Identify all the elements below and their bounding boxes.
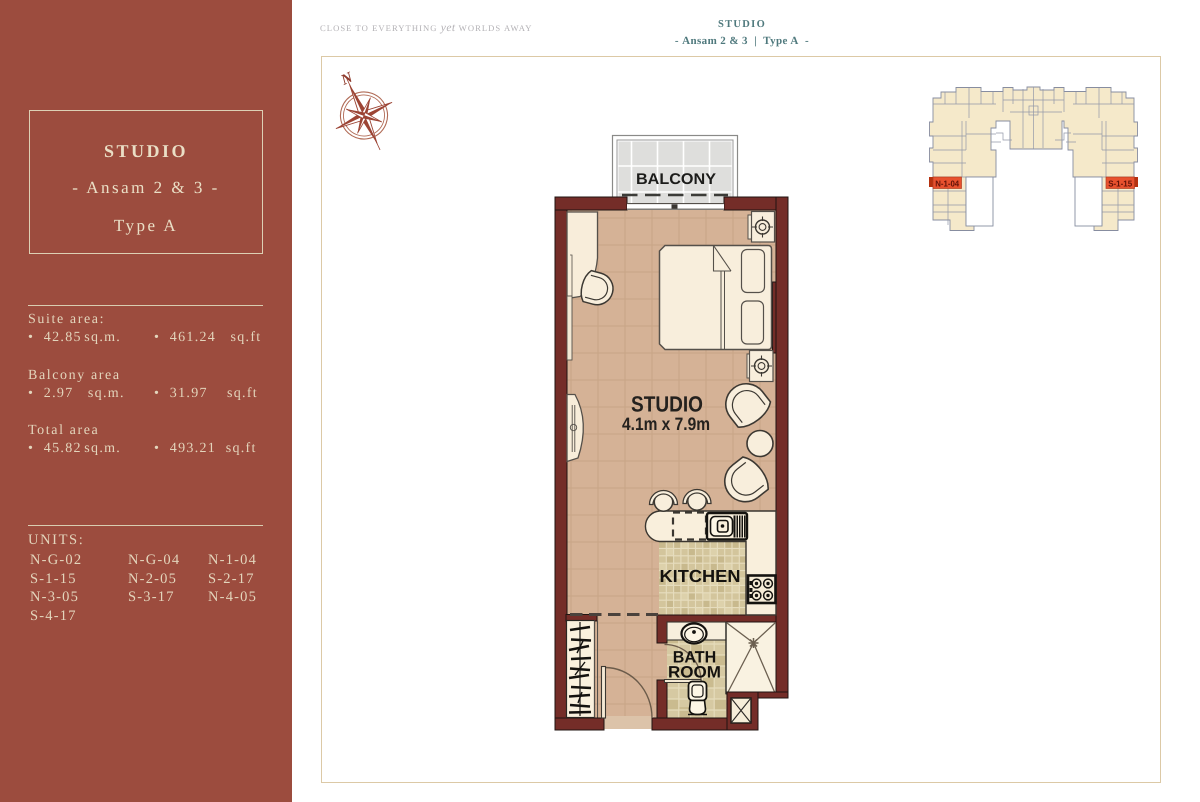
svg-text:S-1-15: S-1-15 <box>1108 178 1132 188</box>
svg-text:STUDIO: STUDIO <box>631 392 703 417</box>
svg-text:ROOM: ROOM <box>668 664 721 682</box>
svg-text:N: N <box>338 69 357 89</box>
svg-text:BALCONY: BALCONY <box>636 171 717 188</box>
svg-text:4.1m x 7.9m: 4.1m x 7.9m <box>622 414 710 434</box>
svg-text:KITCHEN: KITCHEN <box>660 566 741 586</box>
svg-text:N-1-04: N-1-04 <box>935 178 959 188</box>
